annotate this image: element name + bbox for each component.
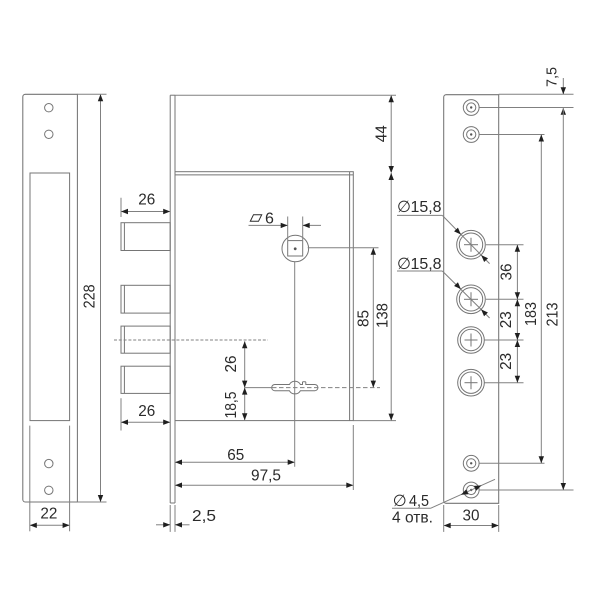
svg-text:26: 26 (223, 355, 240, 372)
svg-text:23: 23 (498, 353, 515, 370)
svg-text:2,5: 2,5 (192, 508, 216, 525)
svg-text:4 отв.: 4 отв. (392, 510, 433, 527)
svg-text:15,8: 15,8 (411, 199, 442, 216)
svg-text:4,5: 4,5 (409, 493, 429, 510)
svg-text:44: 44 (373, 125, 390, 142)
svg-text:26: 26 (138, 403, 155, 420)
svg-text:213: 213 (545, 302, 562, 326)
svg-text:18,5: 18,5 (223, 391, 240, 418)
svg-text:6: 6 (265, 211, 274, 228)
svg-text:30: 30 (463, 508, 480, 525)
svg-text:36: 36 (499, 263, 516, 280)
svg-text:22: 22 (40, 506, 57, 523)
svg-text:138: 138 (375, 303, 392, 328)
svg-text:∅: ∅ (397, 199, 411, 216)
svg-text:85: 85 (356, 310, 373, 327)
svg-text:7,5: 7,5 (543, 67, 560, 87)
svg-text:228: 228 (81, 284, 98, 308)
svg-text:∅: ∅ (393, 493, 407, 510)
svg-text:26: 26 (138, 192, 155, 209)
svg-text:65: 65 (227, 447, 244, 464)
svg-text:97,5: 97,5 (251, 467, 281, 484)
svg-text:183: 183 (523, 302, 540, 326)
svg-text:23: 23 (498, 311, 515, 328)
